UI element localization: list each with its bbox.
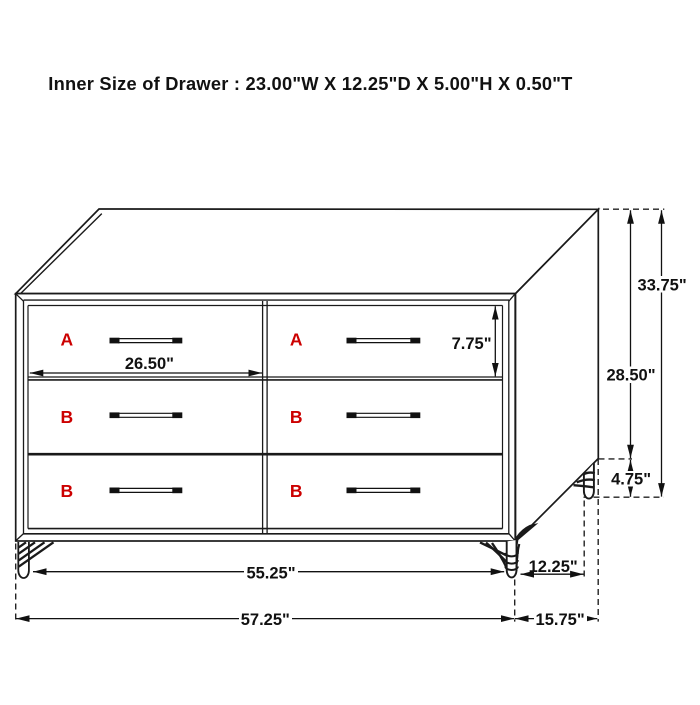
svg-text:A: A [60,330,73,350]
svg-text:7.75": 7.75" [452,335,492,353]
svg-text:57.25": 57.25" [241,611,290,629]
svg-text:B: B [290,407,303,427]
svg-text:15.75": 15.75" [536,611,585,629]
svg-text:4.75": 4.75" [611,470,651,488]
svg-text:26.50": 26.50" [125,355,174,373]
svg-text:12.25": 12.25" [529,558,578,576]
svg-text:28.50": 28.50" [606,367,655,385]
svg-text:55.25": 55.25" [246,565,295,583]
svg-text:B: B [290,481,303,501]
svg-text:A: A [290,330,303,350]
svg-text:33.75": 33.75" [638,276,687,294]
svg-text:B: B [60,407,73,427]
svg-text:B: B [60,481,73,501]
svg-text:Inner Size of Drawer : 23.00"W: Inner Size of Drawer : 23.00"W X 12.25"D… [48,73,572,94]
